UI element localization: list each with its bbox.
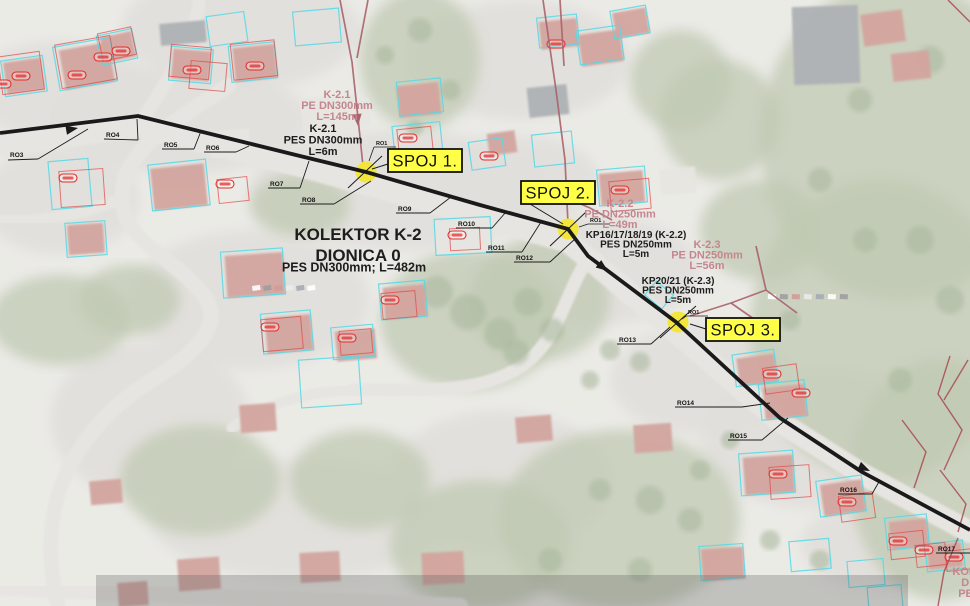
- map-text-line: PES DN300mm: [284, 135, 363, 147]
- map-text-line: K-2.1: [310, 123, 337, 135]
- map-text-line: KOLEKTOR K-2: [294, 225, 421, 244]
- manhole-label: RO7: [270, 181, 284, 188]
- haze-overlay: [0, 0, 970, 606]
- manhole-label: RO6: [206, 145, 220, 152]
- parcel-badge: [94, 53, 112, 61]
- manhole-label: RO15: [730, 433, 747, 440]
- manhole-label: RO4: [106, 132, 120, 139]
- manhole-label: RO8: [302, 197, 316, 204]
- parcel-badge: [611, 186, 629, 194]
- parcel-badge-text: [773, 473, 784, 476]
- spoj-label: SPOJ 3.: [706, 318, 780, 341]
- parcel-badge-text: [72, 74, 83, 77]
- spoj-label-text: SPOJ 2.: [526, 184, 591, 202]
- parcel-badge-text: [842, 501, 853, 504]
- map-text-line: PES DN300mm; L=482m: [282, 260, 426, 274]
- map-viewport: RO3RO4RO5RO6RO7RO8RO9RO10RO11RO12RO13RO1…: [0, 0, 970, 606]
- parcel-badge: [480, 152, 498, 160]
- manhole-label: RO10: [458, 221, 475, 228]
- parcel-badge-text: [615, 189, 626, 192]
- parcel-badge-text: [796, 392, 807, 395]
- spoj-label: SPOJ 1.: [388, 149, 462, 172]
- parcel-badge: [112, 47, 130, 55]
- map-text-line: PE DN: [958, 588, 970, 600]
- parcel-badge: [945, 553, 963, 561]
- satellite-plan-map: RO3RO4RO5RO6RO7RO8RO9RO10RO11RO12RO13RO1…: [0, 0, 970, 606]
- parcel-badge-text: [919, 549, 930, 552]
- junction-label: RO1: [376, 141, 387, 147]
- map-text-line: L=5m: [665, 295, 692, 306]
- parcel-badge-text: [63, 177, 74, 180]
- manhole-label: RO14: [677, 400, 694, 407]
- parcel-badge: [915, 546, 933, 554]
- parcel-badge: [12, 72, 30, 80]
- parcel-badge-text: [220, 183, 231, 186]
- parcel-badge-text: [452, 234, 463, 237]
- manhole-label: RO13: [619, 337, 636, 344]
- spoj-label-text: SPOJ 1.: [393, 152, 458, 170]
- parcel-badge-text: [342, 337, 353, 340]
- parcel-badge-text: [16, 75, 27, 78]
- parcel-badge: [0, 80, 11, 88]
- parcel-badge-text: [385, 299, 396, 302]
- parcel-badge: [246, 62, 264, 70]
- manhole-label: RO3: [10, 152, 24, 159]
- parcel-badge-text: [265, 326, 276, 329]
- parcel-badge-text: [250, 65, 261, 68]
- parcel-badge: [889, 537, 907, 545]
- parcel-badge: [216, 180, 234, 188]
- map-text-block: PES DN300mm; L=482m: [282, 260, 426, 274]
- parcel-badge: [59, 174, 77, 182]
- manhole-label: RO9: [398, 206, 412, 213]
- parcel-badge: [769, 470, 787, 478]
- parcel-badge-text: [551, 43, 562, 46]
- parcel-badge: [381, 296, 399, 304]
- parcel-badge: [261, 323, 279, 331]
- manhole-label: RO17: [938, 546, 955, 553]
- parcel-badge: [763, 370, 781, 378]
- parcel-badge-text: [187, 69, 198, 72]
- parcel-badge-text: [403, 137, 414, 140]
- parcel-badge-text: [484, 155, 495, 158]
- map-text-line: L=56m: [689, 260, 724, 272]
- spoj-label: SPOJ 2.: [521, 181, 595, 204]
- map-text-line: L=5m: [623, 249, 650, 260]
- parcel-badge: [183, 66, 201, 74]
- junction-label: RO1: [688, 310, 699, 316]
- manhole-label: RO11: [488, 245, 505, 252]
- parcel-badge-text: [98, 56, 109, 59]
- manhole-label: RO16: [840, 487, 857, 494]
- parcel-badge-text: [0, 83, 8, 86]
- parcel-badge: [448, 231, 466, 239]
- manhole-label: RO12: [516, 255, 533, 262]
- parcel-badge-text: [893, 540, 904, 543]
- parcel-badge-text: [767, 373, 778, 376]
- map-text-line: L=6m: [308, 146, 337, 158]
- watermark-band: Imagery ©2024 Airbus, Maxar Technologies: [96, 575, 908, 606]
- parcel-badge: [68, 71, 86, 79]
- parcel-badge: [838, 498, 856, 506]
- parcel-badge: [399, 134, 417, 142]
- satellite-imagery-layer: [0, 0, 970, 606]
- parcel-badge-text: [116, 50, 127, 53]
- spoj-label-text: SPOJ 3.: [711, 321, 776, 339]
- parcel-badge: [338, 334, 356, 342]
- parcel-badge: [792, 389, 810, 397]
- manhole-label: RO5: [164, 142, 178, 149]
- map-text-line: L=145m: [316, 111, 357, 123]
